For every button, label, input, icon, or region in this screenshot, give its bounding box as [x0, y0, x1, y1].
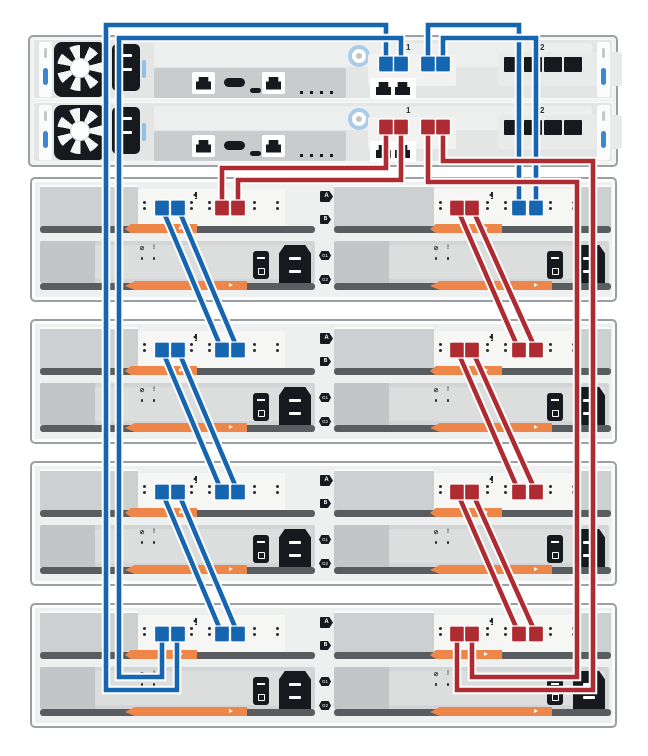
speaker-icon	[193, 334, 197, 340]
left-latch	[39, 42, 52, 97]
led-pair-icon	[276, 485, 279, 497]
iom-right-end-panel	[581, 327, 611, 371]
rj45-icon	[266, 140, 281, 153]
led-pair-icon	[276, 343, 279, 355]
psu-left	[40, 241, 315, 283]
psu-right-handle	[430, 281, 552, 290]
iom-right-handle	[430, 508, 502, 517]
speaker-icon	[193, 192, 197, 198]
psu-2-label: G2	[319, 559, 331, 568]
ac-inlet-icon	[279, 245, 311, 283]
iom-b-label: B	[320, 641, 331, 650]
psu-right-handle	[430, 423, 552, 432]
iom-a-label: A	[320, 333, 333, 344]
iom-left-panel	[40, 611, 138, 655]
drive-shelf-3: A B G1 G2	[30, 461, 617, 586]
led-pair-icon	[143, 627, 146, 639]
ethernet-port	[262, 135, 285, 157]
power-status-icon	[432, 245, 440, 252]
iom-b-faceplate	[434, 615, 581, 653]
left-latch	[39, 105, 52, 160]
led-pair-icon	[504, 627, 507, 639]
psu-left	[40, 667, 315, 709]
led-pair-icon	[549, 201, 552, 213]
psu-right-handle	[430, 565, 552, 574]
iom-right-handle	[430, 366, 502, 375]
power-switch	[547, 535, 563, 563]
power-status-icon	[432, 387, 440, 394]
iom-left-panel	[40, 327, 138, 371]
iom-right-end-panel	[581, 185, 611, 229]
ethernet-port-pair	[370, 141, 416, 162]
led-pair-icon	[253, 485, 256, 497]
iom-b-label: B	[320, 499, 331, 508]
right-latch	[597, 42, 610, 97]
psu-body	[389, 529, 605, 563]
power-inlet-icon	[112, 44, 140, 91]
iom-left-panel	[40, 185, 138, 229]
led-pair-icon	[190, 201, 193, 213]
psu-right-handle	[430, 707, 552, 716]
iom-right-panel	[334, 185, 434, 229]
controller-b: 1 2	[33, 102, 613, 162]
usb-port-icon	[250, 151, 261, 156]
rj45-icon	[196, 140, 211, 153]
iom-b-label: B	[320, 357, 331, 366]
power-switch	[547, 393, 563, 421]
psu-2-label: G2	[319, 275, 331, 284]
iom-b-faceplate	[434, 473, 581, 511]
led-pair-icon	[439, 201, 442, 213]
led-pair-icon	[253, 627, 256, 639]
iom-left-handle	[125, 224, 197, 233]
led-pair-icon	[572, 201, 575, 213]
led-pair-icon	[486, 343, 489, 355]
psu-left-handle	[125, 565, 247, 574]
led-pair-icon	[208, 343, 211, 355]
power-switch	[547, 251, 563, 279]
iom-a-faceplate	[138, 615, 285, 653]
psu-body	[389, 671, 605, 705]
fan-icon	[54, 105, 106, 160]
drive-shelf-1: A B G1 G2	[30, 177, 617, 302]
iom-right-handle	[430, 224, 502, 233]
iom-right-handle	[430, 650, 502, 659]
power-switch	[253, 677, 269, 705]
power-status-icon	[138, 671, 146, 678]
led-row-icon	[300, 91, 338, 94]
led-row-icon	[300, 154, 338, 157]
iom-b-label: B	[320, 215, 331, 224]
power-status-icon	[138, 387, 146, 394]
rj45-icon	[376, 145, 391, 158]
ethernet-port	[192, 72, 215, 94]
led-pair-icon	[486, 201, 489, 213]
attention-icon	[150, 671, 158, 677]
psu-left	[40, 383, 315, 425]
attention-icon	[150, 529, 158, 535]
psu-right	[334, 241, 609, 283]
ethernet-port	[262, 72, 285, 94]
hic-ports-icon	[504, 57, 582, 72]
attention-icon	[444, 671, 452, 677]
ethernet-port	[192, 135, 215, 157]
led-pair-icon	[143, 485, 146, 497]
led-pair-icon	[276, 627, 279, 639]
iom-left-handle	[125, 508, 197, 517]
led-pair-icon	[143, 201, 146, 213]
drive-shelf-4: A B G1 G2	[30, 603, 617, 728]
psu-2-label: G2	[319, 701, 331, 710]
psu-right	[334, 525, 609, 567]
speaker-icon	[489, 192, 493, 198]
power-status-icon	[138, 529, 146, 536]
psu-1-label: G1	[319, 677, 331, 686]
psu-body	[95, 245, 311, 279]
attention-icon	[150, 387, 158, 393]
iom-right-panel	[334, 611, 434, 655]
speaker-icon	[193, 476, 197, 482]
led-pair-icon	[549, 485, 552, 497]
power-switch	[253, 251, 269, 279]
led-pair-icon	[486, 485, 489, 497]
speaker-icon	[489, 334, 493, 340]
psu-body	[95, 529, 311, 563]
led-pair-icon	[439, 343, 442, 355]
sas-group-label: 1	[406, 106, 410, 115]
led-pair-icon	[504, 485, 507, 497]
serial-port-icon	[224, 141, 245, 150]
led-pair-icon	[208, 485, 211, 497]
iom-a-label: A	[320, 617, 333, 628]
led-pair-icon	[276, 201, 279, 213]
led-pair-icon	[439, 627, 442, 639]
ac-inlet-icon	[573, 387, 605, 425]
ac-inlet-icon	[279, 529, 311, 567]
led-pair-icon	[439, 485, 442, 497]
iom-right-end-panel	[581, 469, 611, 513]
iom-a-label: A	[320, 191, 333, 202]
psu-left	[40, 525, 315, 567]
led-pair-icon	[504, 201, 507, 213]
sas-group-label: 1	[406, 43, 410, 52]
psu-left-handle	[125, 423, 247, 432]
psu-body	[389, 245, 605, 279]
psu-body	[95, 387, 311, 421]
power-inlet-icon	[112, 107, 140, 154]
iom-a-faceplate	[138, 189, 285, 227]
led-pair-icon	[253, 201, 256, 213]
speaker-icon	[489, 618, 493, 624]
iom-a-faceplate	[138, 473, 285, 511]
psu-right	[334, 667, 609, 709]
psu-1-label: G1	[319, 393, 331, 402]
power-switch	[547, 677, 563, 705]
psu-2-label: G2	[319, 417, 331, 426]
power-switch	[253, 393, 269, 421]
hic-group-label: 2	[540, 106, 544, 115]
ac-inlet-icon	[573, 671, 605, 709]
attention-icon	[444, 245, 452, 251]
handle-accent	[142, 123, 146, 141]
ac-inlet-icon	[573, 245, 605, 283]
ac-inlet-icon	[573, 529, 605, 567]
rj45-icon	[266, 77, 281, 90]
rj45-icon	[395, 145, 410, 158]
psu-1-label: G1	[319, 251, 331, 260]
power-switch	[253, 535, 269, 563]
ethernet-port-pair	[370, 78, 416, 99]
speaker-icon	[489, 476, 493, 482]
drive-shelf-2: A B G1 G2	[30, 319, 617, 444]
rj45-icon	[376, 82, 391, 95]
iom-left-handle	[125, 366, 197, 375]
iom-b-faceplate	[434, 331, 581, 369]
iom-left-handle	[125, 650, 197, 659]
rj45-icon	[196, 77, 211, 90]
hic-ports-icon	[504, 120, 582, 135]
serial-port-icon	[224, 78, 245, 87]
fan-hub-icon	[70, 58, 90, 78]
led-pair-icon	[208, 201, 211, 213]
controller-a: 1 2	[33, 39, 613, 99]
rj45-icon	[395, 82, 410, 95]
iom-a-label: A	[320, 475, 333, 486]
psu-left-handle	[125, 281, 247, 290]
psu-body	[389, 387, 605, 421]
led-pair-icon	[190, 485, 193, 497]
psu-left-handle	[125, 707, 247, 716]
right-latch	[597, 105, 610, 160]
led-pair-icon	[572, 485, 575, 497]
locate-ring-icon	[348, 108, 370, 130]
handle-accent	[142, 60, 146, 78]
hic-group-label: 2	[540, 43, 544, 52]
attention-icon	[444, 529, 452, 535]
led-pair-icon	[504, 343, 507, 355]
psu-body	[95, 671, 311, 705]
locate-ring-icon	[348, 45, 370, 67]
attention-icon	[150, 245, 158, 251]
led-pair-icon	[549, 627, 552, 639]
attention-icon	[444, 387, 452, 393]
cabling-diagram: 1 2 1 2	[0, 0, 648, 756]
iom-left-panel	[40, 469, 138, 513]
power-status-icon	[432, 529, 440, 536]
speaker-icon	[193, 618, 197, 624]
psu-right	[334, 383, 609, 425]
iom-right-panel	[334, 327, 434, 371]
led-pair-icon	[143, 343, 146, 355]
usb-port-icon	[250, 88, 261, 93]
led-pair-icon	[253, 343, 256, 355]
ac-inlet-icon	[279, 671, 311, 709]
led-pair-icon	[549, 343, 552, 355]
led-pair-icon	[572, 627, 575, 639]
iom-right-panel	[334, 469, 434, 513]
controller-shelf: 1 2 1 2	[28, 35, 618, 167]
led-pair-icon	[190, 343, 193, 355]
psu-1-label: G1	[319, 535, 331, 544]
led-pair-icon	[572, 343, 575, 355]
led-pair-icon	[208, 627, 211, 639]
power-status-icon	[432, 671, 440, 678]
fan-icon	[54, 42, 106, 97]
fan-hub-icon	[70, 121, 90, 141]
iom-b-faceplate	[434, 189, 581, 227]
power-status-icon	[138, 245, 146, 252]
iom-right-end-panel	[581, 611, 611, 655]
ac-inlet-icon	[279, 387, 311, 425]
led-pair-icon	[190, 627, 193, 639]
led-pair-icon	[486, 627, 489, 639]
iom-a-faceplate	[138, 331, 285, 369]
